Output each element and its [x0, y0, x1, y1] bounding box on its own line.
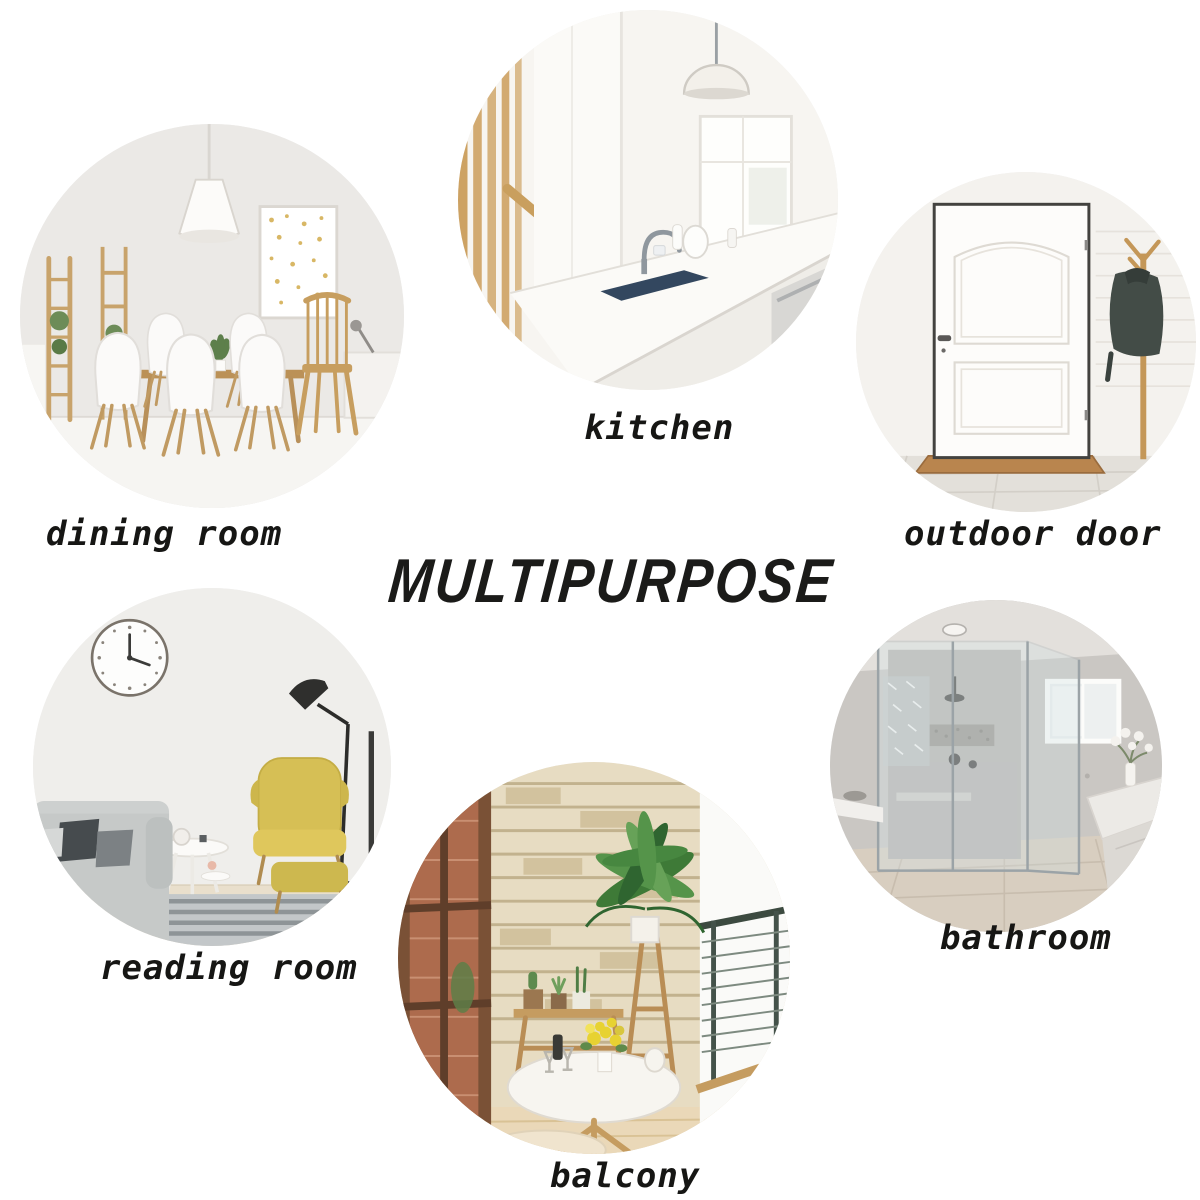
- reading-room-illustration: [33, 588, 391, 946]
- dining-room-photo: [20, 124, 404, 508]
- balcony-illustration: [398, 762, 790, 1154]
- balcony-label: balcony: [550, 1156, 700, 1196]
- bathroom-illustration: [830, 600, 1162, 932]
- outdoor-door-photo: [856, 172, 1196, 512]
- page-title: MULTIPURPOSE: [386, 546, 838, 617]
- balcony-photo: [398, 762, 790, 1154]
- multipurpose-collage: MULTIPURPOSE dining room kitchen outdoor…: [0, 0, 1200, 1200]
- outdoor-door-label: outdoor door: [904, 514, 1162, 554]
- dining-room-label: dining room: [46, 514, 282, 554]
- kitchen-label: kitchen: [584, 408, 734, 448]
- kitchen-photo: [458, 10, 838, 390]
- bathroom-label: bathroom: [940, 918, 1112, 958]
- reading-room-label: reading room: [100, 948, 358, 988]
- bathroom-photo: [830, 600, 1162, 932]
- reading-room-photo: [33, 588, 391, 946]
- dining-room-illustration: [20, 124, 404, 508]
- outdoor-door-illustration: [856, 172, 1196, 512]
- kitchen-illustration: [458, 10, 838, 390]
